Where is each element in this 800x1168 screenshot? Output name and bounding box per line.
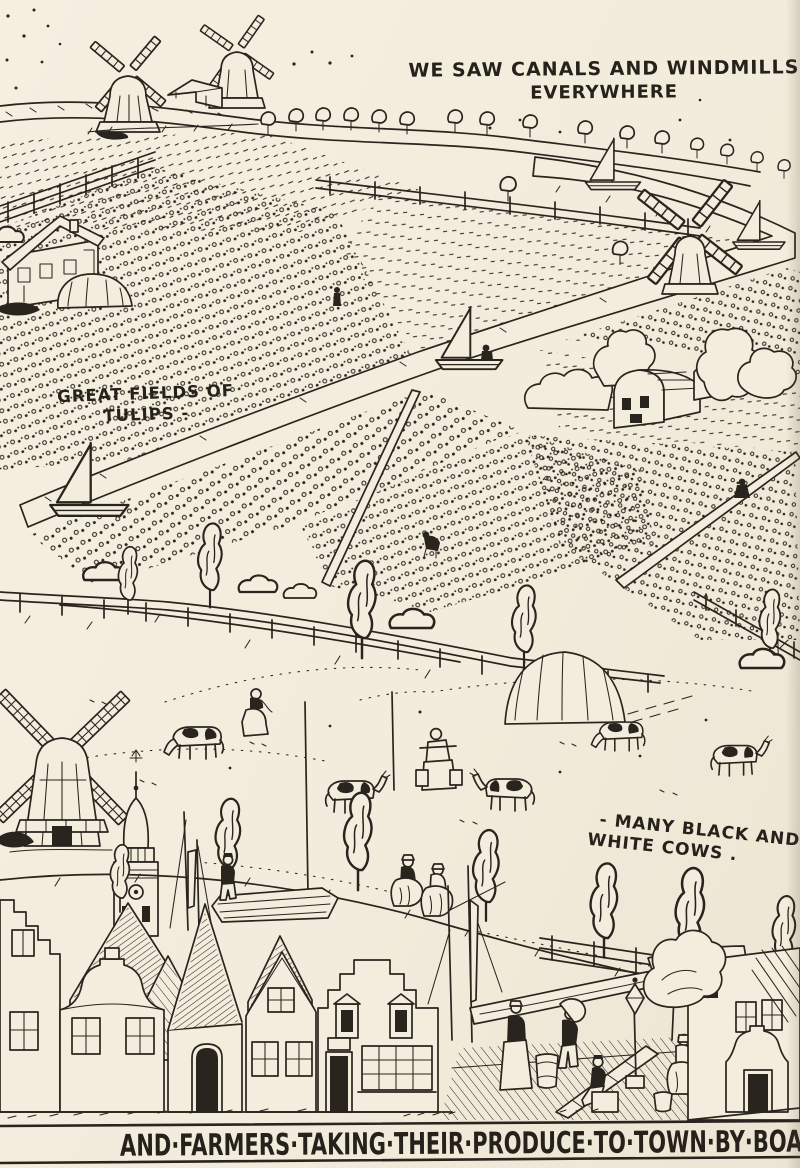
house-stepped-shop <box>318 960 438 1112</box>
caption-bottom-banner: AND·FARMERS·TAKING·THEIR·PRODUCE·TO·TOWN… <box>120 1124 680 1165</box>
house-arched-door <box>168 904 242 1112</box>
book-illustration-page: WE SAW CANALS AND WINDMILLS EVERYWHERE G… <box>0 0 800 1168</box>
windmill-large <box>0 689 130 852</box>
caption-tulip-fields: GREAT FIELDS OF TULIPS - <box>45 381 246 429</box>
caption-canals-line1: WE SAW CANALS AND WINDMILLS <box>408 56 800 83</box>
house-stepped-left <box>0 900 60 1112</box>
sailboat-top <box>585 138 640 189</box>
house-white-gable <box>246 952 316 1112</box>
caption-canals-windmills: WE SAW CANALS AND WINDMILLS EVERYWHERE <box>408 56 800 106</box>
basket <box>654 1092 672 1112</box>
windmill-top-left <box>90 36 166 139</box>
caption-canals-line2: EVERYWHERE <box>408 80 800 106</box>
bottom-banner-text: AND·FARMERS·TAKING·THEIR·PRODUCE·TO·TOWN… <box>120 1124 680 1165</box>
milkmaid-kneeling <box>242 689 272 736</box>
holland-illustration <box>0 0 800 1168</box>
seated-women-on-bank <box>391 855 452 916</box>
meadow <box>60 667 758 824</box>
haystack <box>505 649 784 724</box>
milkmaid-with-pail <box>416 729 462 790</box>
